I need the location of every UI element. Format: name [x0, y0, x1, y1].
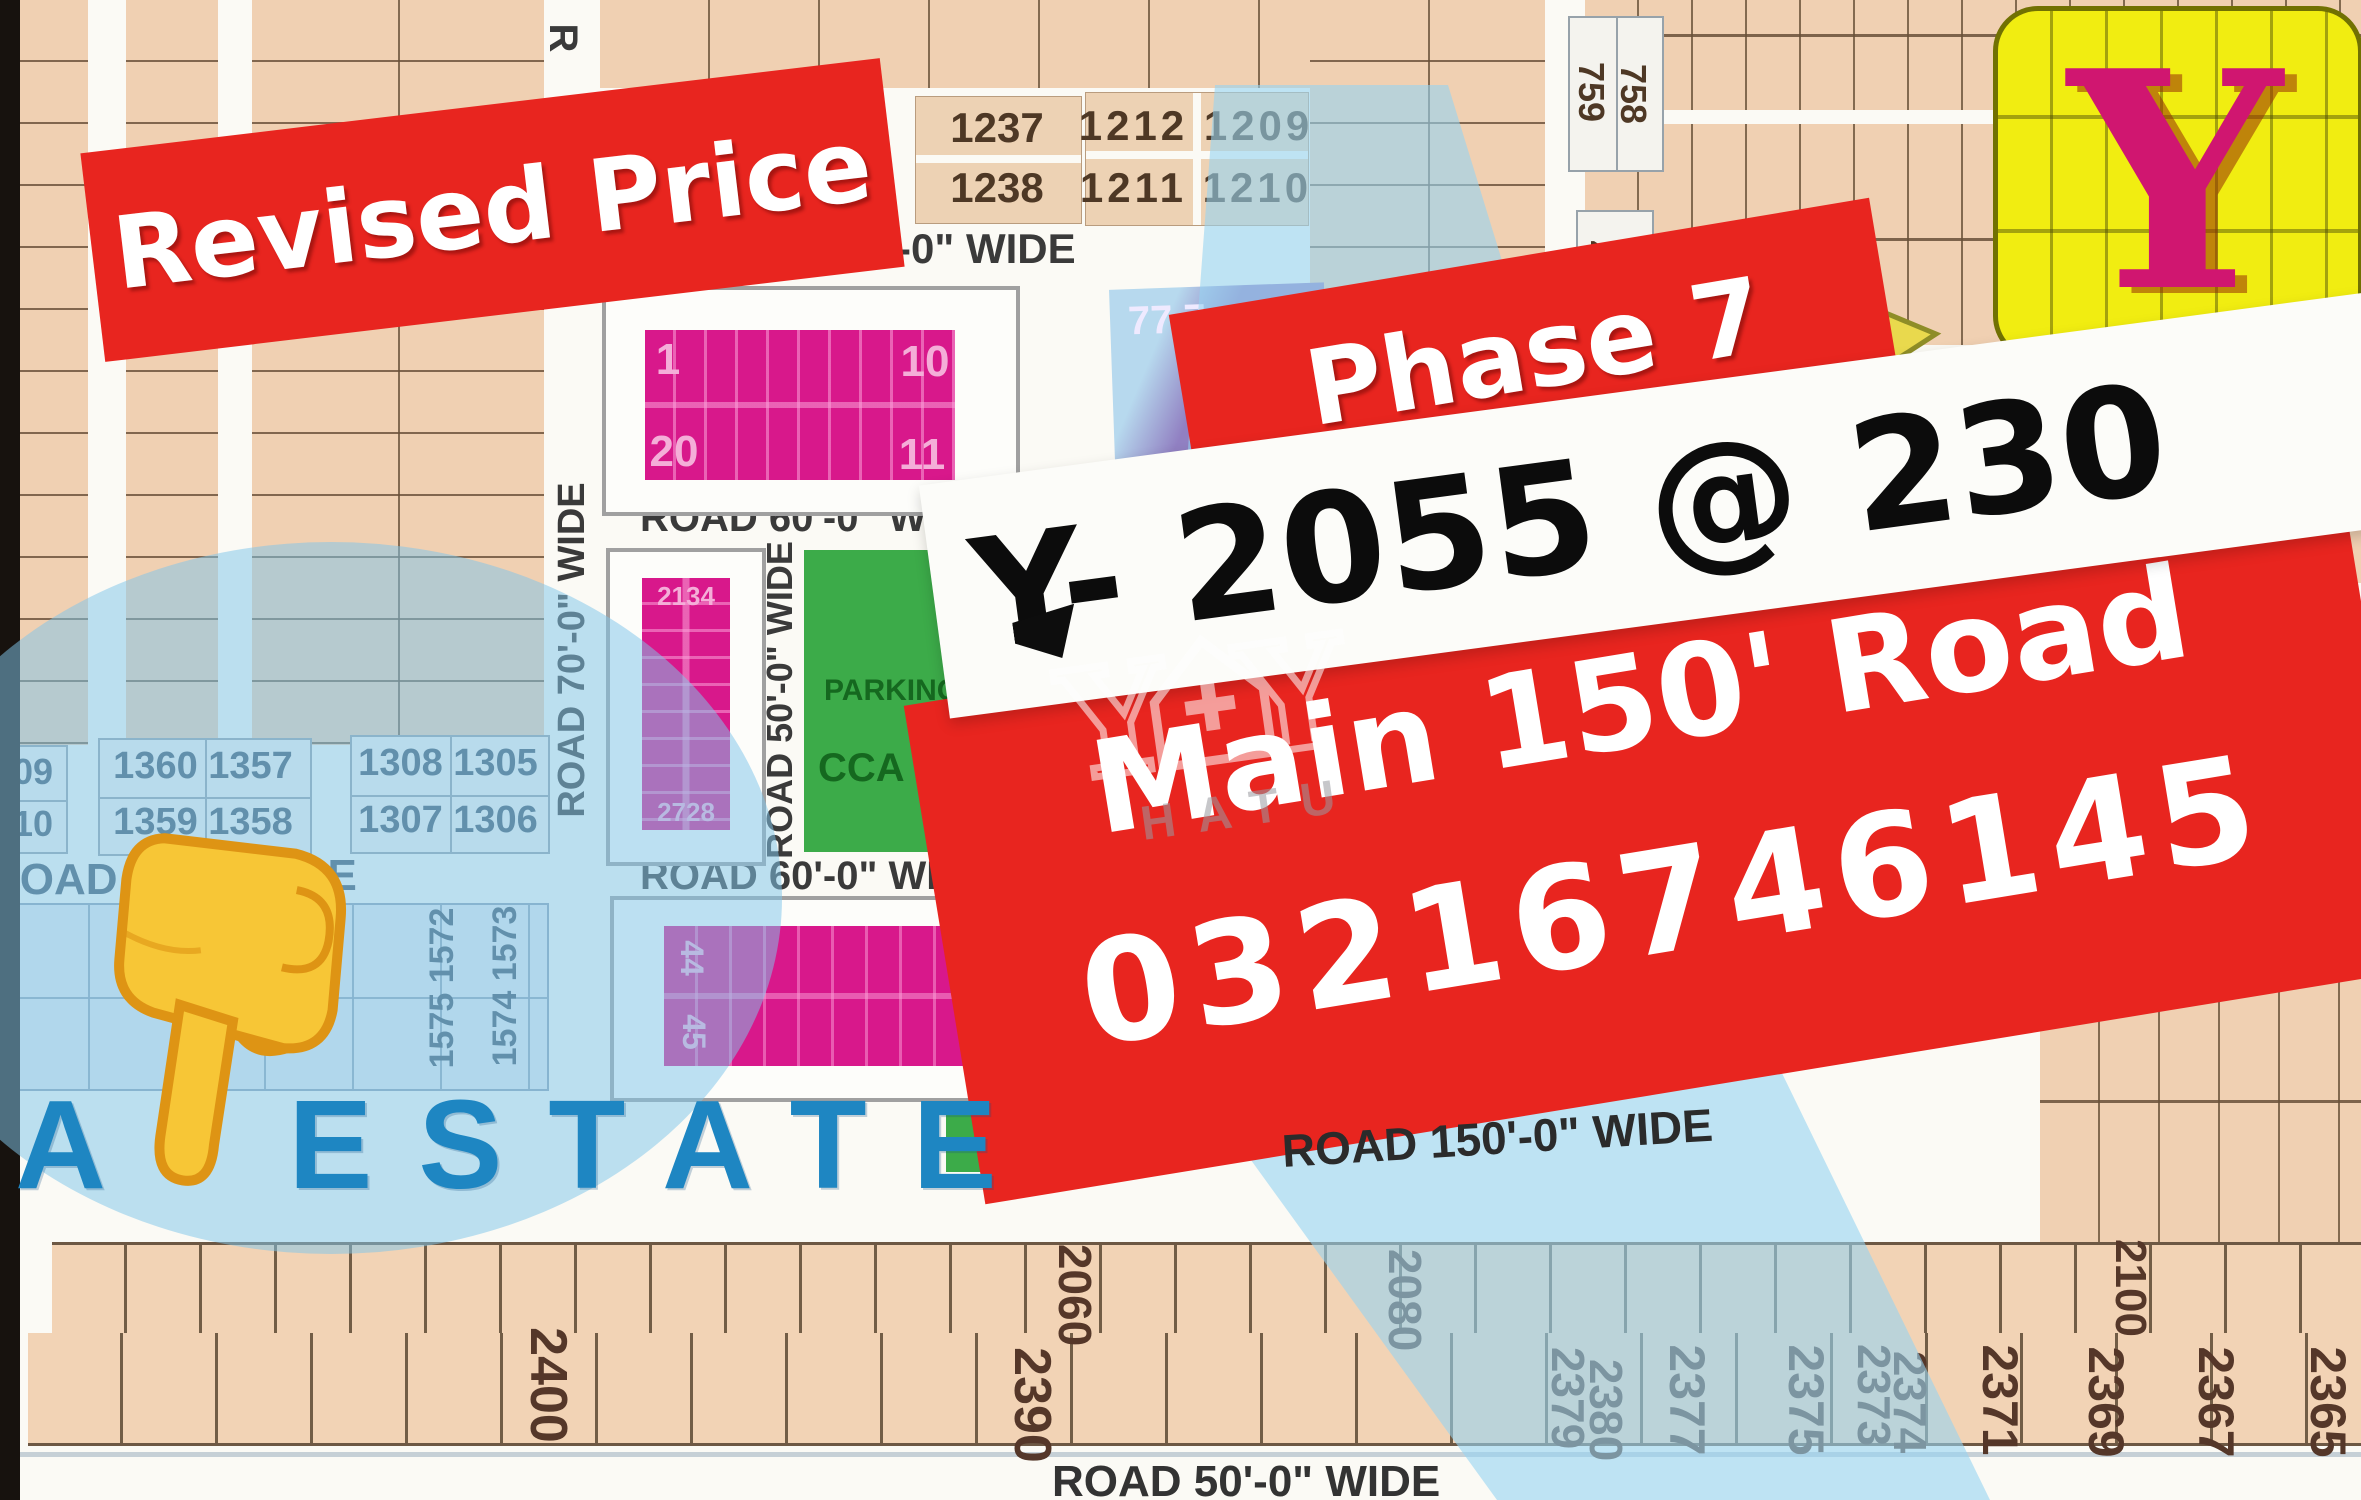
plot-number: 2367	[2191, 1346, 2241, 1457]
plot-number: 2060	[1052, 1244, 1098, 1346]
svg-text:Y: Y	[1048, 627, 1182, 817]
plot-number: 758	[1615, 64, 1651, 124]
plot-number: 10	[901, 340, 950, 384]
plot-number: 1	[656, 338, 680, 382]
plot-number: 2365	[2303, 1346, 2353, 1457]
plot-number: 2134	[657, 583, 715, 609]
pointing-down-finger-icon	[88, 822, 353, 1227]
road-label-50-bottom: ROAD 50'-0" WIDE	[1052, 1460, 1440, 1500]
plot-number: 1237	[950, 107, 1043, 149]
svg-text:Y: Y	[1226, 602, 1360, 792]
plot-number: 759	[1573, 62, 1609, 122]
watermark-logo: Y Y HATU	[1017, 576, 1412, 903]
y-letter: Y	[2068, 32, 2282, 332]
plot-number: 20	[650, 430, 699, 474]
plot-number: 2400	[522, 1327, 574, 1443]
plot-number: 2100	[2108, 1239, 2152, 1337]
top-middle-plot-strip	[600, 0, 1310, 88]
plot-map-image: 1237 1238 1212 1209 1211 1210 759 758 4 …	[0, 0, 2361, 1500]
plot-number: 2371	[1975, 1344, 2025, 1455]
plot-number: 11	[899, 433, 946, 477]
bottom-plot-row-upper	[52, 1242, 2361, 1336]
plot-number: 2390	[1006, 1347, 1058, 1463]
road-label-vertical-r: R	[543, 24, 583, 53]
plot-number: 2369	[2081, 1346, 2131, 1457]
plot-number: 1238	[950, 167, 1043, 209]
